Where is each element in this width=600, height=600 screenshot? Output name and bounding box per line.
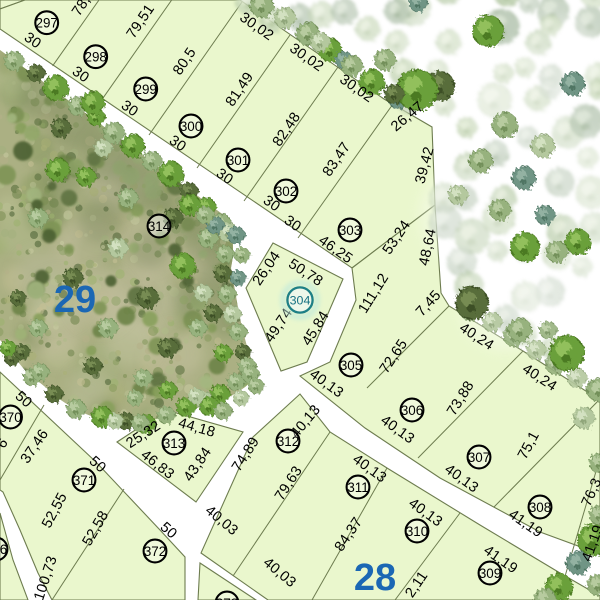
svg-text:371: 371 <box>73 473 95 488</box>
svg-text:300: 300 <box>180 119 202 134</box>
svg-text:307: 307 <box>468 450 490 465</box>
svg-text:306: 306 <box>401 403 423 418</box>
svg-text:304: 304 <box>290 293 311 307</box>
svg-text:28: 28 <box>354 557 396 599</box>
svg-text:370: 370 <box>0 410 22 425</box>
svg-text:372: 372 <box>144 544 166 559</box>
svg-text:311: 311 <box>347 480 368 495</box>
svg-text:299: 299 <box>135 82 157 97</box>
svg-text:309: 309 <box>479 566 501 581</box>
svg-text:386: 386 <box>0 542 7 557</box>
svg-text:314: 314 <box>148 219 171 234</box>
svg-text:301: 301 <box>227 153 249 168</box>
svg-text:297: 297 <box>36 16 58 31</box>
svg-text:312: 312 <box>277 434 299 449</box>
svg-text:313: 313 <box>163 436 185 451</box>
svg-text:308: 308 <box>529 500 551 515</box>
svg-text:378: 378 <box>216 596 238 600</box>
svg-text:302: 302 <box>275 184 297 199</box>
svg-text:305: 305 <box>340 358 362 373</box>
svg-text:29: 29 <box>54 279 96 321</box>
svg-text:310: 310 <box>406 524 428 539</box>
svg-text:298: 298 <box>85 50 107 65</box>
svg-text:303: 303 <box>339 223 361 238</box>
